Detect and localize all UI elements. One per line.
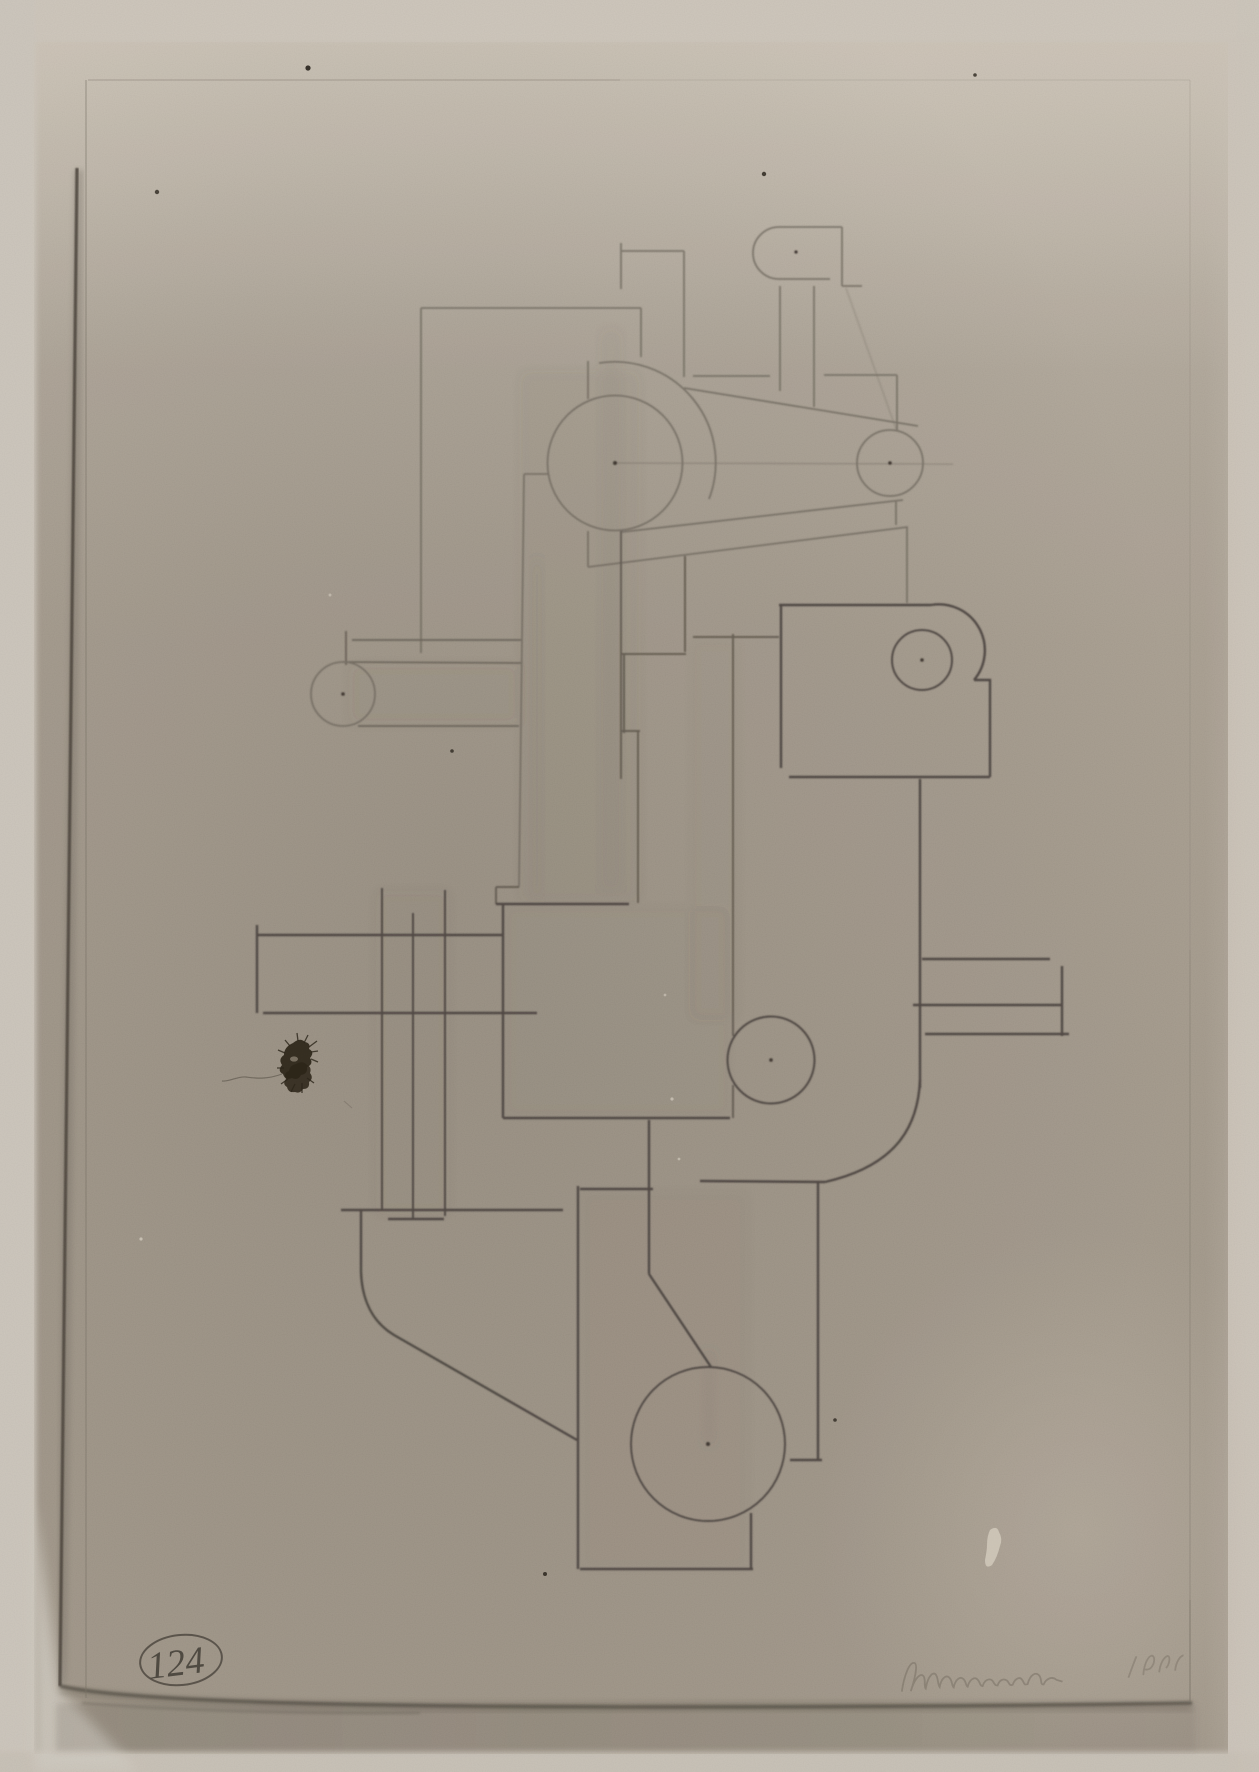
svg-text:124: 124	[145, 1639, 207, 1688]
